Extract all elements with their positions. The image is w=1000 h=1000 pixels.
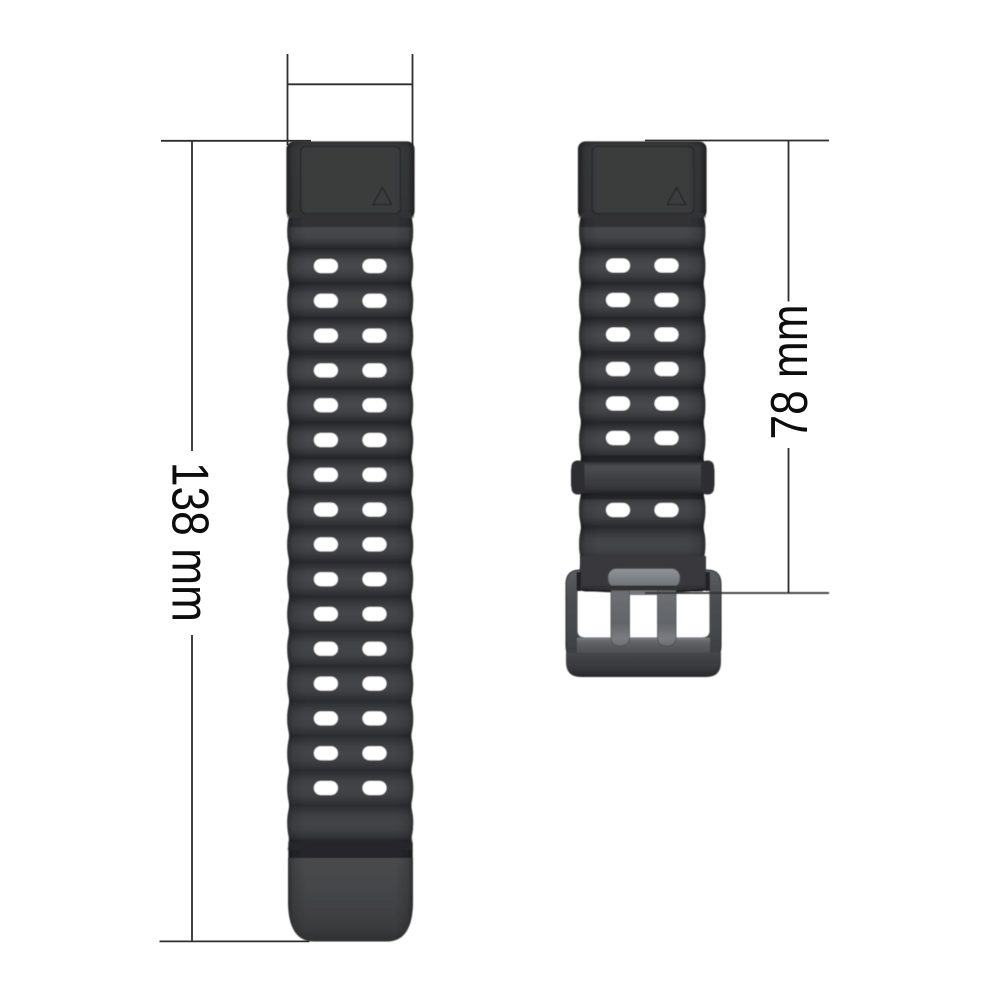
svg-text:78 mm: 78 mm xyxy=(761,305,819,440)
svg-text:138 mm: 138 mm xyxy=(161,462,219,622)
